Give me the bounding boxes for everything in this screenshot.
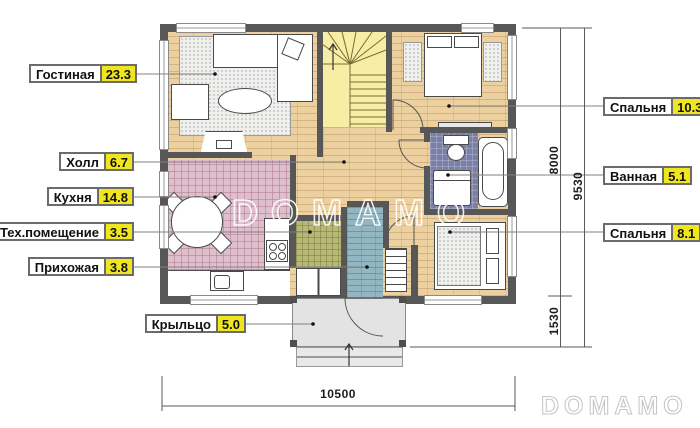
dimension-10500: 10500 — [308, 387, 368, 401]
room-area-badge: 10.3 — [671, 99, 700, 114]
room-label-bedroom1: Спальня 10.3 — [603, 97, 700, 116]
porch-step — [296, 357, 403, 367]
room-name: Ванная — [605, 168, 662, 183]
window — [461, 23, 494, 33]
window — [159, 205, 169, 249]
porch-post — [290, 296, 297, 303]
porch-step — [296, 347, 403, 357]
room-label-kitchen: Кухня 14.8 — [47, 187, 134, 206]
room-name: Прихожая — [30, 259, 104, 274]
window — [190, 295, 258, 305]
dimension-8000: 8000 — [547, 145, 561, 175]
window — [507, 216, 517, 277]
watermark-center: DOMAMO — [232, 192, 478, 234]
dining-table — [171, 196, 223, 248]
window — [424, 295, 482, 305]
pillow — [486, 258, 499, 284]
room-name: Спальня — [605, 225, 671, 240]
stove — [266, 240, 288, 262]
room-label-entry: Прихожая 3.8 — [28, 257, 134, 276]
pillow — [454, 36, 479, 48]
room-area-badge: 23.3 — [100, 66, 135, 81]
room-name: Кухня — [49, 189, 97, 204]
room-area-badge: 5.1 — [662, 168, 690, 183]
interior-wall — [411, 245, 418, 296]
room-name: Спальня — [605, 99, 671, 114]
interior-wall — [167, 152, 252, 158]
tech-room-cabinet — [296, 268, 341, 296]
room-name: Крыльцо — [147, 316, 216, 331]
bedside-rug — [483, 42, 502, 82]
floor-plan-canvas: Гостиная 23.3 Холл 6.7 Кухня 14.8 Тех.по… — [0, 0, 700, 428]
bed-blanket — [437, 226, 481, 286]
dimension-1530: 1530 — [547, 306, 561, 336]
room-area-badge: 14.8 — [97, 189, 132, 204]
room-area-badge: 3.8 — [104, 259, 132, 274]
burner — [278, 243, 286, 251]
toilet-bowl — [447, 144, 465, 161]
staircase-floor — [322, 32, 386, 127]
window — [507, 128, 517, 159]
dimension-9530: 9530 — [571, 171, 585, 201]
room-label-bedroom2: Спальня 8.1 — [603, 223, 700, 242]
porch-post — [290, 340, 297, 347]
sink-bowl — [214, 275, 230, 289]
room-name: Гостиная — [31, 66, 100, 81]
room-name: Тех.помещение — [0, 224, 104, 239]
room-area-badge: 8.1 — [671, 225, 699, 240]
kitchen-sink-unit — [210, 271, 244, 291]
entry-shelving — [385, 248, 407, 292]
burner — [269, 243, 277, 251]
coffee-table — [218, 88, 272, 114]
room-name: Холл — [61, 154, 104, 169]
window — [159, 40, 169, 150]
interior-wall — [424, 133, 430, 142]
room-label-hall: Холл 6.7 — [59, 152, 134, 171]
room-area-badge: 3.5 — [104, 224, 132, 239]
window — [159, 171, 169, 197]
burner — [278, 252, 286, 260]
interior-wall — [386, 32, 392, 132]
interior-wall — [420, 127, 508, 133]
window — [176, 23, 246, 33]
porch-post — [399, 296, 406, 303]
bedside-rug — [403, 42, 422, 82]
room-label-tech: Тех.помещение 3.5 — [0, 222, 134, 241]
room-label-living: Гостиная 23.3 — [29, 64, 137, 83]
window — [507, 35, 517, 100]
tv-screen — [216, 140, 232, 149]
porch-post — [399, 340, 406, 347]
room-area-badge: 6.7 — [104, 154, 132, 169]
burner — [269, 252, 277, 260]
room-area-badge: 5.0 — [216, 316, 244, 331]
pillow — [427, 36, 452, 48]
pillow — [486, 228, 499, 254]
interior-wall — [317, 32, 323, 157]
watermark-corner: DOMAMO — [541, 392, 688, 421]
porch — [292, 298, 406, 347]
room-label-bathroom: Ванная 5.1 — [603, 166, 692, 185]
armchair — [171, 84, 209, 120]
room-label-porch: Крыльцо 5.0 — [145, 314, 246, 333]
bathtub-inner — [482, 142, 504, 200]
